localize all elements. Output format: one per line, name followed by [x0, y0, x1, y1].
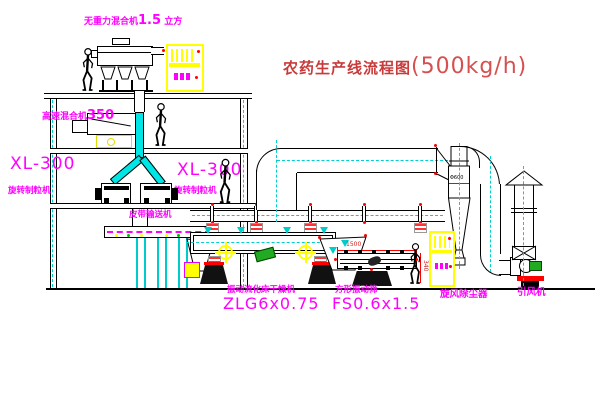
node-dot — [363, 221, 366, 224]
node-dot — [334, 258, 337, 261]
cabinet-knob — [445, 263, 448, 269]
granulator-right-motor — [171, 188, 178, 200]
person-figure — [406, 240, 425, 288]
flange-marker — [308, 206, 312, 222]
granulator-foot — [104, 198, 109, 203]
stack-flange — [511, 208, 537, 209]
title-capacity: (500kg/h) — [411, 54, 527, 79]
gravity-mixer-unit: 立方 — [164, 17, 182, 27]
hs-mixer-model: 350 — [87, 108, 114, 123]
screen-clamp — [344, 250, 348, 254]
gravity-mixer-volume: 1.5 — [138, 13, 161, 28]
flange-marker — [418, 206, 422, 222]
feed-chute-branch-right — [139, 156, 166, 187]
flow-arrow — [320, 227, 328, 234]
flow-diagram-canvas: 农药生产线流程图(500kg/h) 无重力混合机1.5 立方 高速混合机350 — [0, 0, 600, 403]
node-dot — [318, 236, 321, 239]
feed-chute-vertical — [135, 112, 144, 158]
granulator-foot — [165, 198, 170, 203]
symbol-cross — [225, 242, 227, 263]
hs-mixer-pulley — [107, 138, 115, 146]
conveyor-leg — [136, 238, 146, 288]
cabinet-knob — [186, 73, 190, 80]
gravity-mixer-name: 无重力混合机 — [84, 17, 138, 27]
indicator-light — [195, 76, 198, 79]
node-dot — [434, 144, 437, 147]
granulator-detail — [104, 186, 129, 190]
screen-clamp — [358, 266, 362, 270]
stack-flange — [511, 212, 537, 213]
duct-centerline — [192, 215, 443, 216]
hs-mixer-name: 高速混合机 — [42, 112, 87, 122]
gravity-mixer-label: 无重力混合机1.5 立方 — [84, 14, 182, 27]
node-dot — [364, 234, 367, 237]
conveyor-leg — [157, 238, 167, 288]
gravity-mixer-top-port — [112, 38, 130, 45]
flow-arrow — [283, 227, 291, 234]
duct-centerline — [490, 156, 491, 272]
granulator-detail — [144, 186, 170, 190]
spring-mount — [414, 223, 427, 233]
cabinet-divider — [169, 63, 200, 67]
granulator-foot — [144, 198, 149, 203]
node-dot — [363, 203, 366, 206]
person-figure — [78, 47, 98, 93]
flow-arrow — [204, 227, 212, 234]
screen-clamp — [386, 266, 390, 270]
screen-clamp — [344, 266, 348, 270]
cabinet-knob — [435, 263, 438, 269]
indicator-light — [449, 265, 452, 268]
cabinet-knob — [180, 73, 184, 80]
indicator-light — [448, 237, 451, 240]
granulator-left-body — [101, 183, 131, 204]
stack-transition — [512, 246, 536, 260]
exhaust-stack — [514, 184, 534, 246]
control-cabinet-2 — [429, 231, 455, 287]
duct-centerline — [277, 160, 448, 161]
fan-label: 引风机 — [517, 288, 546, 298]
granulator-left-name-label: 旋转制粒机 — [8, 187, 51, 196]
screen-clamp — [400, 266, 404, 270]
gravity-mixer-hoppers — [100, 66, 152, 80]
person-figure — [215, 158, 236, 205]
floor-slab-top — [44, 93, 252, 99]
diagram-title: 农药生产线流程图(500kg/h) — [283, 54, 527, 79]
mixer-discharge-duct — [134, 91, 145, 112]
granulator-right-name-label: 旋转制粒机 — [174, 187, 217, 196]
belt-roller — [140, 234, 143, 237]
symbol-cross — [305, 242, 307, 263]
dryer-centerline — [186, 242, 340, 243]
column-centerline — [243, 100, 244, 287]
dim-line — [337, 250, 417, 251]
stack-rain-cap — [505, 169, 543, 186]
gravity-mixer-body — [97, 46, 153, 66]
screen-length-dim: 1500 — [346, 242, 361, 248]
node-dot — [419, 203, 422, 206]
cabinet-divider — [432, 250, 452, 253]
belt-conveyor-label: 皮带输送机 — [129, 211, 172, 220]
gravity-mixer-lid-line — [97, 52, 153, 53]
ground-line — [46, 288, 595, 290]
screen-model-label: FS0.6x1.5 — [332, 296, 420, 312]
dryer-model-label: ZLG6x0.75 — [223, 296, 320, 312]
granulator-foot — [124, 198, 129, 203]
building-column-right — [240, 99, 248, 288]
belt-roller — [177, 234, 180, 237]
stack-centerline — [523, 166, 524, 286]
dryer-feed-inlet — [184, 262, 200, 278]
cyclone-label: 旋风除尘器 — [440, 290, 488, 300]
screen-clamp — [386, 250, 390, 254]
belt-roller — [127, 234, 130, 237]
indicator-light — [197, 50, 200, 53]
fan-motor — [529, 261, 542, 271]
high-speed-mixer-label: 高速混合机350 — [42, 109, 114, 122]
cabinet-knob — [174, 73, 178, 80]
node-dot — [162, 49, 165, 52]
screen-base — [352, 271, 392, 286]
node-dot — [370, 268, 373, 271]
granulator-right-body — [140, 183, 172, 204]
flange-marker — [362, 206, 366, 222]
person-figure — [151, 102, 171, 148]
cabinet-vents — [171, 49, 195, 62]
flow-arrow — [329, 247, 337, 254]
dryer-top-duct — [190, 210, 445, 222]
belt-roller — [165, 234, 168, 237]
flange-marker — [210, 206, 214, 222]
belt-roller — [115, 234, 118, 237]
screen-clamp — [372, 250, 376, 254]
floor-slab-second — [50, 148, 248, 154]
hs-mixer-panel — [96, 135, 132, 148]
foot-pad — [204, 262, 224, 265]
cabinet-knob — [440, 263, 443, 269]
screen-clamp — [358, 250, 362, 254]
flow-arrow — [237, 227, 245, 234]
duct-centerline — [276, 140, 277, 222]
control-cabinet-1 — [166, 44, 204, 92]
granulator-left-model-label: XL-300 — [10, 156, 75, 173]
node-dot — [309, 203, 312, 206]
screen-clamp — [400, 250, 404, 254]
column-centerline — [52, 100, 53, 287]
title-text: 农药生产线流程图 — [283, 59, 411, 77]
node-dot — [211, 203, 214, 206]
